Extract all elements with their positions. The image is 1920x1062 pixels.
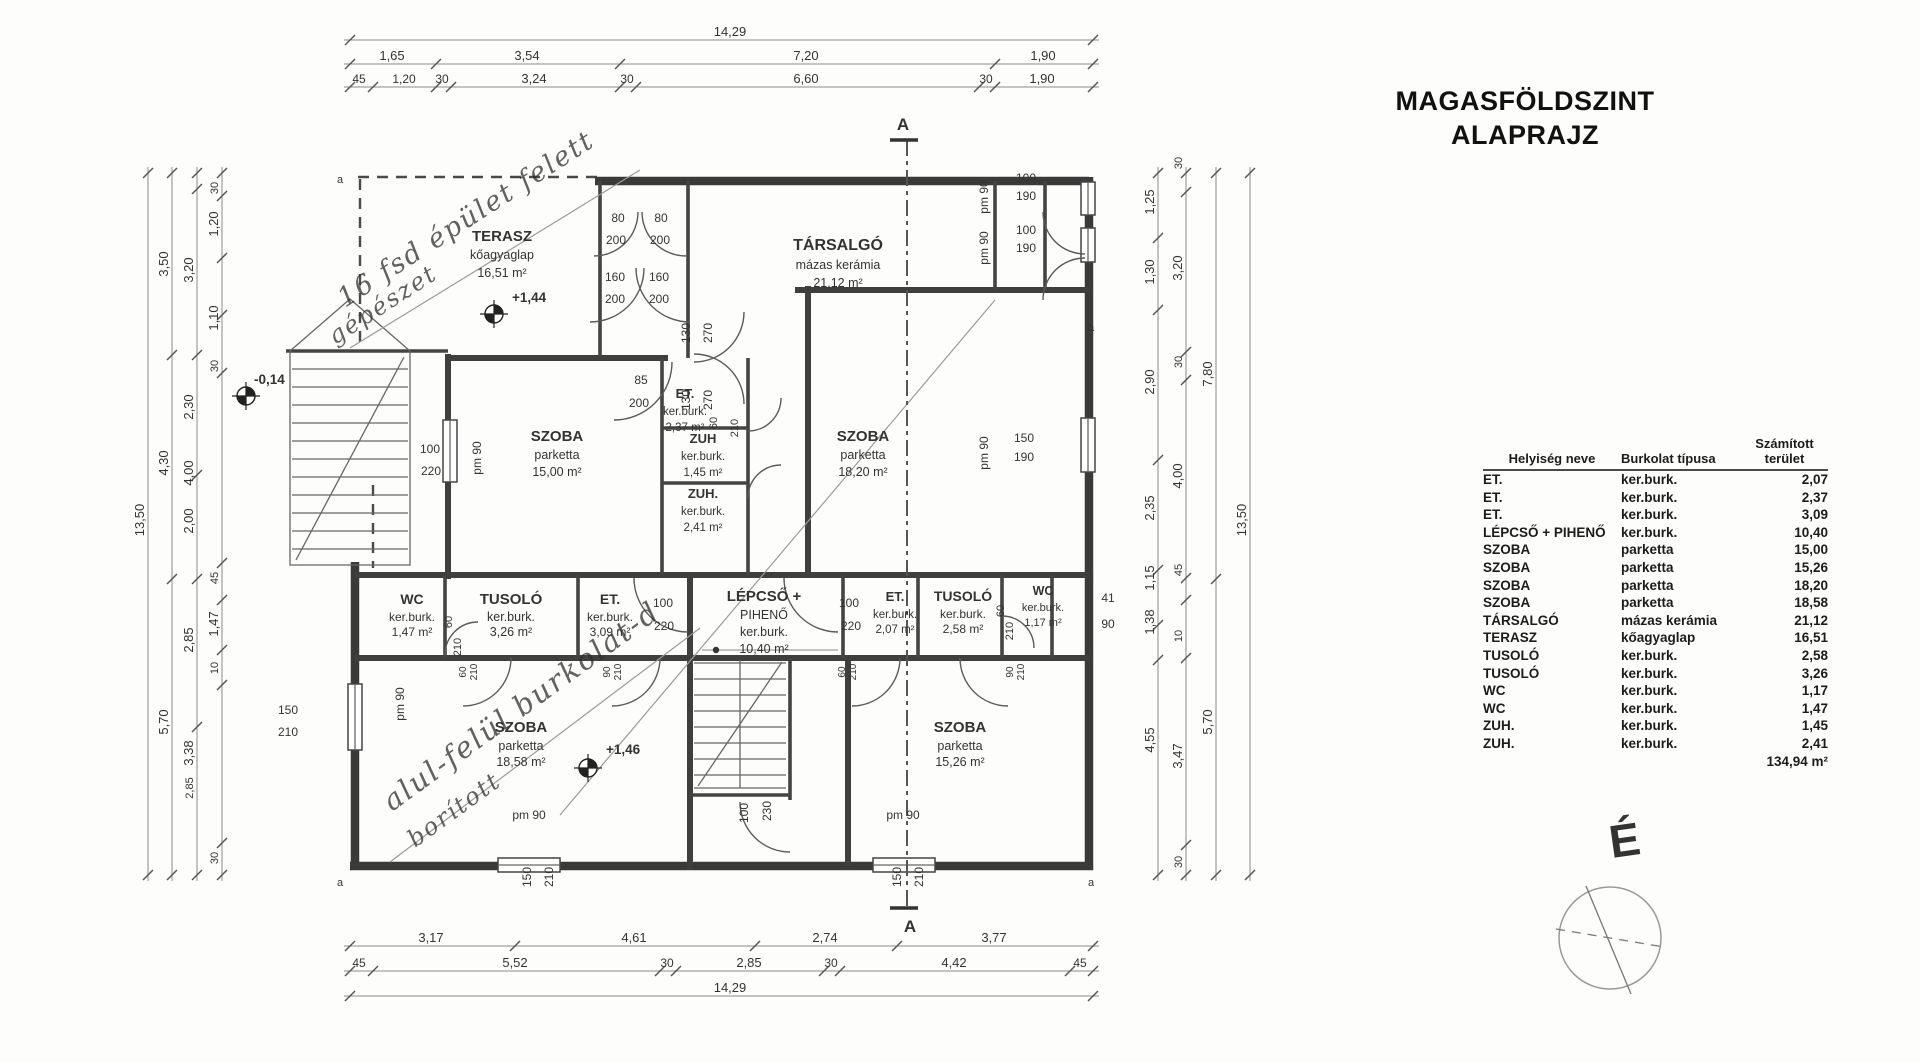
opening-dim-label: 190 (1014, 450, 1034, 464)
dim-label: 4,00 (181, 460, 196, 485)
opening-dim-label: 200 (605, 292, 625, 306)
dim-label: 3,77 (981, 930, 1006, 945)
level-marker (574, 754, 602, 782)
dim-label: 10 (1173, 630, 1185, 642)
opening-dim-label: 210 (1016, 663, 1027, 680)
dim-label: 10 (209, 662, 221, 674)
dim-label: 3,24 (521, 71, 546, 86)
dim-label: 1,20 (392, 72, 416, 86)
dim-label: 6,60 (793, 71, 818, 86)
dim-label: 3,20 (1170, 255, 1185, 280)
opening-dim-label: 210 (848, 663, 859, 680)
opening-dim-label: 90 (602, 666, 613, 678)
opening-dim-label: 150 (1014, 431, 1034, 445)
dim-label: 13,50 (132, 504, 147, 537)
dim-label: 3,50 (156, 251, 171, 276)
opening-dim-label: 220 (421, 464, 441, 478)
opening-dim-label: 60 (995, 605, 1007, 617)
dim-label: 30 (209, 360, 221, 372)
dim-label: 1,20 (206, 211, 221, 236)
dim-label: 1,15 (1142, 565, 1157, 590)
room-label-szoba-18-20: 18,20 m² (838, 465, 887, 479)
opening-dim-label: 200 (650, 233, 670, 247)
room-label-et-3-09: ET. (600, 591, 620, 607)
room-label-zuh-1-45: 1,45 m² (684, 467, 723, 479)
opening-dim-label: pm 90 (470, 441, 484, 475)
dim-label: 3,54 (514, 48, 539, 63)
room-label-szoba-15-00: SZOBA (531, 428, 584, 445)
dim-label: 30 (660, 956, 674, 970)
dim-label: 4,00 (1170, 463, 1185, 488)
dim-label: 45 (1073, 956, 1087, 970)
dim-label: 13,50 (1234, 504, 1249, 537)
opening-dim-label: 160 (605, 270, 625, 284)
dim-label: 45 (352, 956, 366, 970)
dim-label: 5,52 (502, 955, 527, 970)
dim-label: 1,65 (379, 48, 404, 63)
room-label-zuh-2-41: ker.burk. (681, 506, 725, 518)
room-label-wc-1-17: ker.burk. (1022, 602, 1064, 614)
dim-label: 4,42 (941, 955, 966, 970)
room-label-terasz: TERASZ (472, 228, 532, 245)
dim-label: 7,20 (793, 48, 818, 63)
opening-dim-label: 200 (606, 233, 626, 247)
opening-dim-label: 210 (912, 867, 926, 887)
level-value-label: +1,46 (606, 742, 641, 757)
opening-dim-label: pm 90 (977, 180, 991, 214)
floor-plan-document: MAGASFÖLDSZINT ALAPRAJZ Helyiség neve Bu… (0, 0, 1920, 1062)
opening-dim-label: 60 (443, 616, 455, 628)
dim-label: 30 (1173, 356, 1185, 368)
opening-dim-label: 230 (760, 801, 774, 821)
room-label-et-2-37: ET. (676, 386, 695, 401)
dim-label: 14,29 (714, 980, 747, 995)
opening-dim-label: 220 (841, 619, 861, 633)
north-label: É (1606, 812, 1644, 868)
dim-label: 45 (209, 572, 221, 584)
opening-dim-label: 60 (458, 666, 469, 678)
dim-label: 1,10 (206, 305, 221, 330)
level-value-label: +1,44 (512, 290, 547, 305)
level-marker-cross (480, 300, 508, 328)
dim-label: 4,61 (621, 930, 646, 945)
opening-dim-label: 190 (1016, 189, 1036, 203)
opening-dim-label: 150 (278, 703, 298, 717)
room-label-tusolo-3-26: ker.burk. (487, 610, 535, 624)
dim-label: 2,85 (736, 955, 761, 970)
dim-label: 3,20 (181, 257, 196, 282)
opening-dim-label: 200 (629, 396, 649, 410)
opening-dim-label: 100 (839, 596, 859, 610)
room-label-szoba-15-00: 15,00 m² (532, 465, 581, 479)
dim-label: 30 (1173, 157, 1185, 169)
level-value-label: -0,14 (254, 372, 285, 387)
dim-label: 3,17 (418, 930, 443, 945)
opening-dim-label: 200 (649, 292, 669, 306)
dim-label: 1,25 (1142, 189, 1157, 214)
opening-dim-label: pm 90 (512, 808, 546, 822)
opening-dim-label: 130 (679, 323, 693, 343)
opening-dim-label: 210 (452, 638, 464, 656)
north-compass: É (1556, 812, 1664, 994)
dim-label: 30 (435, 72, 449, 86)
floor-plan-svg: A A É 14,291,653,547,201,90451,20303,243… (0, 0, 1920, 1062)
dim-label: 2,30 (181, 394, 196, 419)
opening-dim-label: 80 (611, 211, 625, 225)
dim-label: 1,90 (1030, 48, 1055, 63)
room-label-zuh-1-45: ker.burk. (681, 451, 725, 463)
room-label-wc-1-47: WC (400, 591, 423, 607)
dim-label: 4,30 (156, 450, 171, 475)
opening-dim-label: 210 (1004, 622, 1016, 640)
opening-dim-label: 210 (613, 663, 624, 680)
room-label-terasz: 16,51 m² (477, 266, 526, 280)
opening-dim-label: 150 (520, 867, 534, 887)
dim-label: 1,38 (1142, 609, 1157, 634)
dim-label: 30 (620, 72, 634, 86)
room-label-et-2-07: ker.burk. (873, 609, 917, 621)
room-label-zuh-1-45: ZUH (690, 431, 717, 446)
dim-label: 2,90 (1142, 369, 1157, 394)
room-label-terasz: kőagyaglap (470, 248, 534, 262)
opening-dim-label: a (1088, 877, 1095, 889)
dim-label: 2,85 (184, 777, 196, 798)
room-label-wc-1-17: WC (1033, 584, 1054, 598)
dim-label: 30 (209, 182, 221, 194)
room-label-szoba-15-26: SZOBA (934, 719, 987, 736)
opening-dim-label: a (1088, 322, 1095, 334)
opening-dim-label: 210 (469, 663, 480, 680)
level-marker (480, 300, 508, 328)
dim-label: 4,55 (1142, 727, 1157, 752)
dim-label: 30 (1173, 856, 1185, 868)
room-label-et-2-37: ker.burk. (663, 406, 707, 418)
room-label-et-2-07: 2,07 m² (876, 624, 915, 636)
dim-label: 7,80 (1200, 361, 1215, 386)
opening-dim-label: 210 (542, 867, 556, 887)
dim-label: 5,70 (1200, 709, 1215, 734)
opening-dim-label: 100 (737, 803, 751, 823)
room-label-tusolo-3-26: 3,26 m² (490, 625, 532, 639)
room-label-szoba-15-26: 15,26 m² (935, 755, 984, 769)
dim-label: 14,29 (714, 24, 747, 39)
central-staircase (694, 660, 786, 788)
dim-label: 5,70 (156, 709, 171, 734)
opening-dim-label: a (337, 174, 344, 186)
room-label-tusolo-2-58: TUSOLÓ (934, 587, 992, 604)
dim-label: 1,90 (1029, 71, 1054, 86)
room-label-szoba-18-20: parketta (840, 448, 885, 462)
room-label-tarsalgo: mázas kerámia (796, 258, 881, 272)
opening-dim-label: 85 (634, 373, 648, 387)
dim-label: 2,35 (1142, 495, 1157, 520)
dim-label: 2,00 (181, 508, 196, 533)
dim-label: 2,85 (181, 627, 196, 652)
dim-label: 45 (1173, 564, 1185, 576)
room-label-tarsalgo: TÁRSALGÓ (793, 235, 883, 254)
opening-dim-label: 80 (654, 211, 668, 225)
dim-label: 30 (209, 852, 221, 864)
room-label-wc-1-47: ker.burk. (389, 610, 435, 624)
stair-dim-dot (713, 647, 719, 653)
dim-label: 30 (824, 956, 838, 970)
room-label-lepcso-piheno: ker.burk. (740, 625, 788, 639)
opening-dim-label: pm 90 (977, 231, 991, 265)
opening-dim-label: 270 (701, 323, 715, 343)
opening-dim-label: 60 (837, 666, 848, 678)
dim-label: 3,38 (181, 740, 196, 765)
dim-label: 45 (352, 72, 366, 86)
dim-label: 3,47 (1170, 743, 1185, 768)
room-label-lepcso-piheno: LÉPCSŐ + (727, 587, 802, 605)
opening-dim-label: pm 90 (886, 808, 920, 822)
opening-dim-label: a (337, 877, 344, 889)
opening-dim-label: 100 (420, 442, 440, 456)
room-label-et-2-07: ET. (886, 589, 905, 604)
room-label-tusolo-2-58: ker.burk. (940, 607, 986, 621)
opening-dim-label: 100 (653, 596, 673, 610)
opening-dim-label: 100 (1016, 171, 1036, 185)
room-label-tusolo-2-58: 2,58 m² (943, 622, 984, 636)
level-marker-cross (574, 754, 602, 782)
dim-label: 1,30 (1142, 259, 1157, 284)
opening-dim-label: 60 (708, 417, 720, 429)
room-label-lepcso-piheno: PIHENŐ (740, 607, 788, 622)
opening-dim-label: 90 (1101, 617, 1115, 631)
room-label-tarsalgo: 21,12 m² (813, 276, 862, 290)
room-label-lepcso-piheno: 10,40 m² (739, 642, 788, 656)
room-label-zuh-2-41: ZUH. (688, 486, 718, 501)
main-interior-walls (355, 286, 1089, 870)
opening-dim-label: 210 (729, 419, 741, 437)
opening-dim-label: pm 90 (977, 436, 991, 470)
room-label-tusolo-3-26: TUSOLÓ (480, 590, 543, 608)
room-label-szoba-18-20: SZOBA (837, 428, 890, 445)
room-label-szoba-18-58: 18,58 m² (496, 755, 545, 769)
opening-dim-label: 210 (278, 725, 298, 739)
room-label-wc-1-47: 1,47 m² (392, 625, 433, 639)
room-label-zuh-2-41: 2,41 m² (684, 522, 723, 534)
section-label-bottom: A (904, 917, 916, 936)
opening-dim-label: 41 (1101, 591, 1115, 605)
opening-dim-label: 90 (1005, 666, 1016, 678)
opening-dim-label: pm 90 (393, 687, 407, 721)
opening-dim-label: 160 (649, 270, 669, 284)
room-label-szoba-18-58: parketta (498, 739, 543, 753)
opening-dim-label: 100 (1016, 223, 1036, 237)
dim-label: 1,47 (206, 611, 221, 636)
room-label-wc-1-17: 1,17 m² (1024, 617, 1062, 629)
dim-label: 30 (979, 72, 993, 86)
room-label-szoba-15-26: parketta (937, 739, 982, 753)
room-label-szoba-15-00: parketta (534, 448, 579, 462)
opening-dim-label: 150 (890, 867, 904, 887)
opening-dim-label: 190 (1016, 241, 1036, 255)
section-label-top: A (897, 115, 909, 134)
dim-label: 2,74 (812, 930, 837, 945)
